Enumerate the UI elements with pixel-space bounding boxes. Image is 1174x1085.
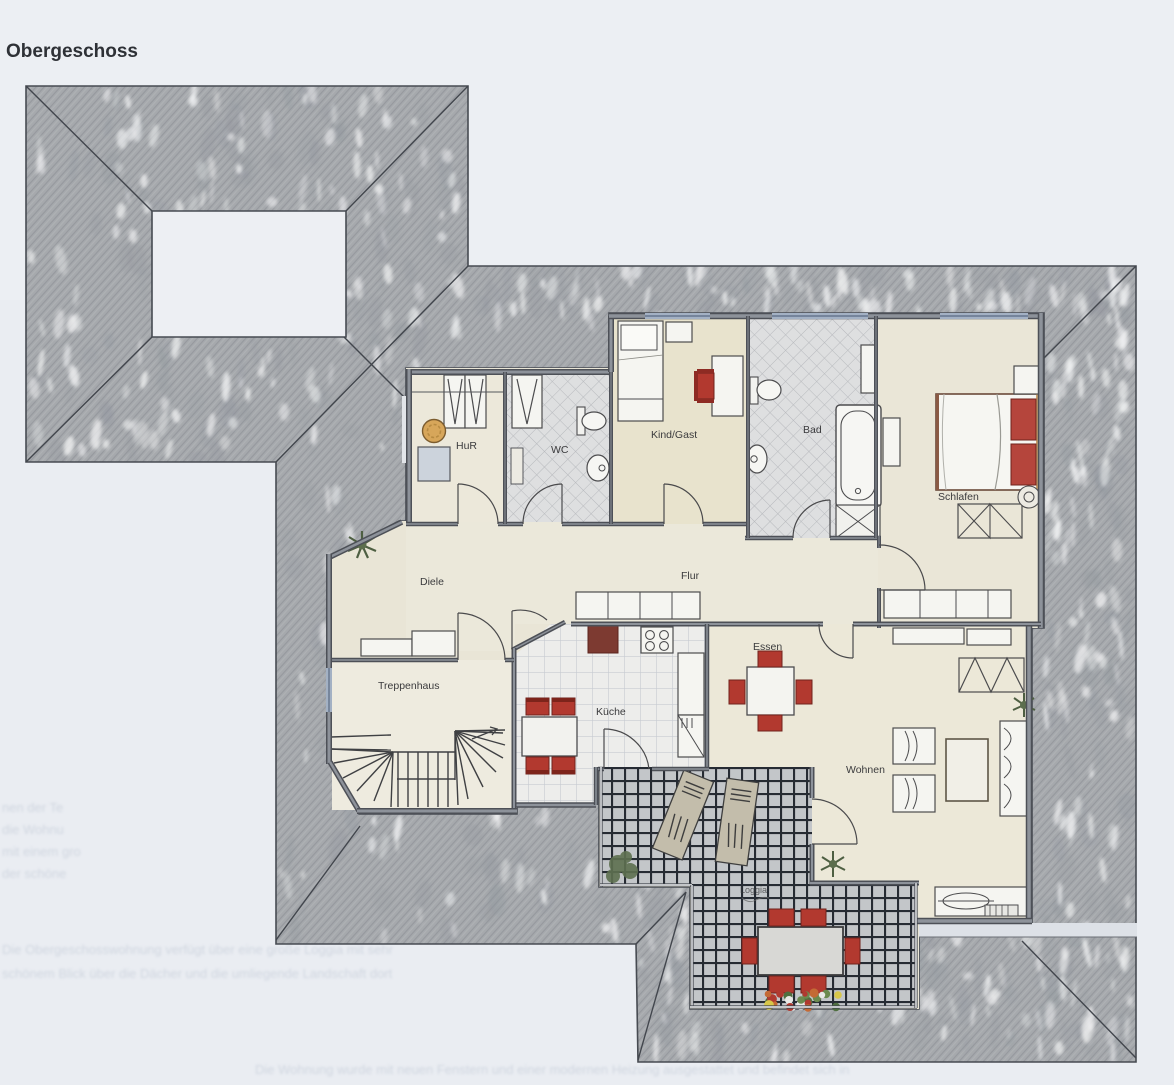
svg-text:Kind/Gast: Kind/Gast — [651, 429, 697, 441]
svg-text:schönem Blick über die Dächer: schönem Blick über die Dächer und die um… — [2, 966, 393, 981]
svg-text:Obergeschoss: Obergeschoss — [6, 41, 138, 62]
svg-text:Wohnen: Wohnen — [846, 764, 885, 776]
svg-text:Schlafen: Schlafen — [938, 491, 979, 503]
svg-text:mit einem gro: mit einem gro — [2, 844, 81, 859]
svg-text:Treppenhaus: Treppenhaus — [378, 680, 440, 692]
svg-text:Küche: Küche — [596, 706, 626, 718]
svg-text:die Wohnu: die Wohnu — [2, 822, 64, 837]
svg-text:Essen: Essen — [753, 641, 782, 653]
svg-text:Bad: Bad — [803, 424, 822, 436]
svg-text:Diele: Diele — [420, 576, 444, 588]
svg-text:der schöne: der schöne — [2, 866, 66, 881]
svg-text:WC: WC — [551, 444, 569, 456]
svg-text:Loggia: Loggia — [740, 885, 767, 895]
svg-text:Die Wohnung wurde mit neuen Fe: Die Wohnung wurde mit neuen Fenstern und… — [255, 1062, 850, 1077]
svg-text:Flur: Flur — [681, 570, 700, 582]
svg-text:nen der Te: nen der Te — [2, 800, 63, 815]
svg-text:HuR: HuR — [456, 440, 477, 452]
